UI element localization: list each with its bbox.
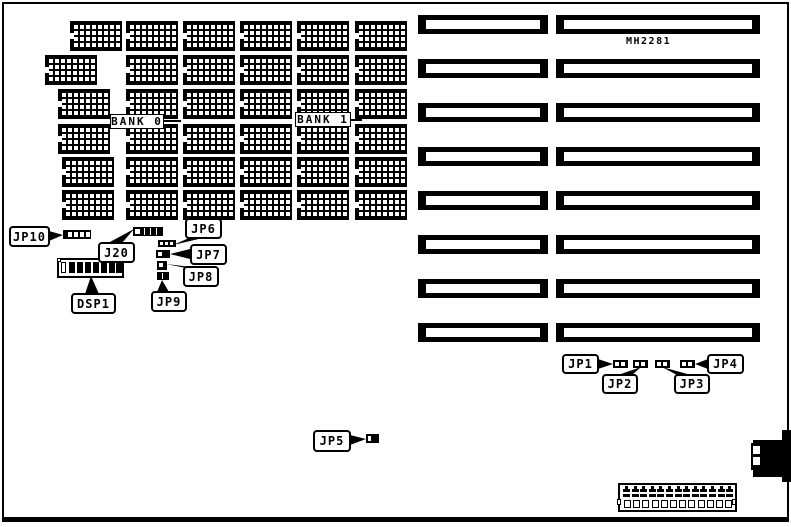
dsp1-open-cell (61, 262, 66, 273)
chip-notch (297, 101, 301, 107)
pin-pad (709, 494, 716, 497)
header-notch (617, 499, 621, 505)
jumper-pin (368, 436, 371, 441)
chip-notch (62, 169, 66, 175)
slot-opening (564, 196, 752, 205)
chip-notch (126, 67, 130, 73)
jumper-pin (68, 232, 72, 237)
dsp1-cell (101, 262, 107, 273)
jumper-pin (156, 228, 157, 235)
memory-chip (126, 157, 178, 187)
chip-notch (70, 33, 74, 39)
chip-notch (355, 169, 359, 175)
edge-connector-hole (753, 446, 760, 454)
pin-header-connector (618, 483, 737, 512)
chip-notch (240, 136, 244, 142)
memory-chip (297, 157, 349, 187)
jp3-jumper (655, 360, 670, 368)
jp4-jumper (680, 360, 695, 368)
chip-notch (126, 202, 130, 208)
dsp1-cell (109, 262, 115, 273)
jumper-pin (615, 362, 619, 366)
jumper-pin (165, 242, 168, 245)
pin-pad (718, 494, 725, 497)
jumper-pin (150, 228, 151, 235)
edge-connector-hole (753, 457, 760, 465)
jumper-pin (682, 362, 686, 366)
pin-socket (652, 500, 659, 508)
jumper-pin (135, 229, 140, 234)
slot-opening (426, 108, 540, 117)
pin-pad (683, 494, 690, 497)
jp1-jumper (613, 360, 628, 368)
chip-notch (183, 101, 187, 107)
chip-notch (297, 67, 301, 73)
memory-chip (297, 124, 349, 154)
expansion-slot-left (418, 323, 548, 342)
pin-base (718, 489, 725, 492)
chip-notch (240, 67, 244, 73)
chip-notch (183, 169, 187, 175)
slot-opening (426, 328, 540, 337)
memory-chip (297, 21, 349, 51)
jumper-pin (688, 362, 692, 366)
header-notch (732, 499, 736, 505)
pin-pad (640, 494, 647, 497)
dsp1-cell (116, 262, 122, 273)
jp10-jumper (63, 230, 91, 239)
slot-opening (564, 20, 752, 29)
chip-notch (355, 33, 359, 39)
slot-opening (564, 240, 752, 249)
memory-chip (62, 190, 114, 220)
memory-chip (240, 190, 292, 220)
dsp1-cell (69, 262, 75, 273)
jumper-pin (158, 252, 162, 256)
callout-j20-text: J20 (104, 246, 129, 260)
bank1-label-text: BANK 1 (297, 113, 349, 126)
callout-jp7: JP7 (190, 244, 227, 265)
memory-chip (240, 55, 292, 85)
expansion-slot-left (418, 191, 548, 210)
callout-dsp1: DSP1 (71, 293, 116, 314)
chip-notch (240, 33, 244, 39)
jp7-jumper (156, 250, 170, 258)
bank0-label: BANK 0 (110, 114, 164, 129)
board-id-text: MH2281 (626, 36, 671, 47)
pin-base (632, 489, 639, 492)
pin-socket (698, 500, 705, 508)
memory-chip (126, 55, 178, 85)
callout-dsp1-text: DSP1 (77, 297, 110, 311)
callout-jp1: JP1 (562, 354, 599, 374)
callout-jp3-text: JP3 (680, 377, 705, 391)
pin-socket (624, 500, 631, 508)
chip-notch (297, 202, 301, 208)
memory-chip (355, 89, 407, 119)
slot-opening (564, 284, 752, 293)
pin-base (657, 489, 664, 492)
chip-notch (240, 169, 244, 175)
memory-chip (62, 157, 114, 187)
slot-opening (426, 284, 540, 293)
chip-notch (240, 101, 244, 107)
pin-base (666, 489, 673, 492)
memory-chip (355, 124, 407, 154)
memory-chip (240, 157, 292, 187)
expansion-slot-left (418, 147, 548, 166)
callout-jp3: JP3 (674, 374, 710, 394)
chip-notch (58, 136, 62, 142)
jumper-diagram: BANK 0 BANK 1 MH2281 JP10 J20 JP6 JP7 JP… (0, 0, 791, 527)
memory-chip (240, 21, 292, 51)
jumper-pin (663, 362, 667, 366)
expansion-slot-left (418, 59, 548, 78)
chip-notch (45, 67, 49, 73)
memory-chip (297, 190, 349, 220)
chip-notch (126, 169, 130, 175)
pin-base (675, 489, 682, 492)
expansion-slot-left (418, 15, 548, 34)
chip-notch (126, 101, 130, 107)
memory-chip (297, 55, 349, 85)
pin-base (649, 489, 656, 492)
expansion-slot-left (418, 279, 548, 298)
jumper-pin (144, 228, 145, 235)
slot-opening (426, 240, 540, 249)
jp8-jumper (157, 261, 167, 270)
chip-notch (240, 202, 244, 208)
memory-chip (355, 190, 407, 220)
callout-jp1-text: JP1 (568, 357, 593, 371)
jumper-pin (80, 232, 84, 237)
pin-socket (642, 500, 649, 508)
chip-notch (355, 136, 359, 142)
chip-notch (126, 136, 130, 142)
pin-socket (679, 500, 686, 508)
callout-jp7-text: JP7 (196, 248, 221, 262)
memory-chip (58, 89, 110, 119)
memory-chip (183, 21, 235, 51)
chip-notch (183, 33, 187, 39)
jumper-pin (657, 362, 661, 366)
chip-notch (62, 202, 66, 208)
pin-socket (688, 500, 695, 508)
chip-notch (183, 136, 187, 142)
bank0-label-text: BANK 0 (111, 115, 163, 128)
callout-jp4-text: JP4 (713, 357, 738, 371)
pin-base (692, 489, 699, 492)
j20-jumper (133, 227, 163, 236)
callout-jp4: JP4 (707, 354, 744, 374)
pin-socket (633, 500, 640, 508)
memory-chip (355, 21, 407, 51)
callout-jp8-text: JP8 (189, 270, 214, 284)
pin-base (683, 489, 690, 492)
chip-notch (355, 202, 359, 208)
callout-jp5: JP5 (313, 430, 351, 452)
jumper-pin (641, 362, 645, 366)
pin-socket (716, 500, 723, 508)
pin-base (640, 489, 647, 492)
expansion-slot-left (418, 235, 548, 254)
memory-chip (183, 190, 235, 220)
slot-opening (426, 64, 540, 73)
memory-chip (355, 157, 407, 187)
jumper-pin (635, 362, 639, 366)
slot-opening (564, 64, 752, 73)
memory-chip (183, 55, 235, 85)
chip-notch (355, 67, 359, 73)
callout-jp2-text: JP2 (608, 377, 633, 391)
pin-socket (707, 500, 714, 508)
slot-opening (426, 20, 540, 29)
bank1-label: BANK 1 (295, 112, 351, 127)
memory-chip (45, 55, 97, 85)
slot-opening (564, 108, 752, 117)
jumper-pin (159, 263, 163, 267)
memory-chip (240, 89, 292, 119)
jp5-jumper (366, 434, 379, 443)
callout-jp5-text: JP5 (320, 434, 345, 448)
memory-chip (355, 55, 407, 85)
memory-chip (240, 124, 292, 154)
memory-chip (126, 190, 178, 220)
callout-jp9: JP9 (151, 291, 187, 312)
jp6-jumper (158, 240, 176, 247)
jumper-pin (170, 242, 173, 245)
jumper-pin (162, 273, 163, 279)
jumper-pin (86, 232, 90, 237)
pin-base (726, 489, 733, 492)
expansion-slot-right (556, 279, 760, 298)
dsp1-cell (93, 262, 99, 273)
expansion-slot-right (556, 235, 760, 254)
pin-pad (675, 494, 682, 497)
callout-jp6: JP6 (185, 218, 222, 239)
pin-pad (632, 494, 639, 497)
jp9-jumper (157, 272, 169, 280)
callout-jp10-text: JP10 (13, 230, 46, 244)
callout-jp8: JP8 (183, 266, 219, 287)
chip-notch (297, 169, 301, 175)
pin-pad (649, 494, 656, 497)
expansion-slot-right (556, 191, 760, 210)
dsp1-cell (85, 262, 91, 273)
chip-notch (297, 136, 301, 142)
pin-pad (666, 494, 673, 497)
callout-j20: J20 (98, 242, 135, 263)
dsp1-cell (77, 262, 83, 273)
memory-chip (183, 124, 235, 154)
chip-notch (183, 67, 187, 73)
expansion-slot-right (556, 323, 760, 342)
memory-chip (70, 21, 122, 51)
pin-pad (726, 494, 733, 497)
slot-opening (564, 328, 752, 337)
jp2-jumper (633, 360, 648, 368)
pin-pad (692, 494, 699, 497)
pin-base (709, 489, 716, 492)
pin-pad (623, 494, 630, 497)
pin-socket (670, 500, 677, 508)
expansion-slot-left (418, 103, 548, 122)
expansion-slot-right (556, 59, 760, 78)
expansion-slot-right (556, 147, 760, 166)
jumper-pin (621, 362, 625, 366)
slot-opening (426, 152, 540, 161)
chip-notch (297, 33, 301, 39)
callout-jp6-text: JP6 (191, 222, 216, 236)
memory-chip (126, 21, 178, 51)
chip-notch (126, 33, 130, 39)
expansion-slot-right (556, 15, 760, 34)
pin-base (700, 489, 707, 492)
jumper-pin (74, 232, 78, 237)
pin-pad (657, 494, 664, 497)
slot-opening (426, 196, 540, 205)
expansion-slot-right (556, 103, 760, 122)
callout-jp9-text: JP9 (157, 295, 182, 309)
callout-jp2: JP2 (602, 374, 638, 394)
callout-jp10: JP10 (9, 226, 50, 247)
pin-pad (700, 494, 707, 497)
chip-notch (355, 101, 359, 107)
pin-base (623, 489, 630, 492)
chip-notch (183, 202, 187, 208)
jumper-pin (160, 242, 163, 245)
memory-chip (183, 89, 235, 119)
slot-opening (564, 152, 752, 161)
memory-chip (58, 124, 110, 154)
memory-chip (183, 157, 235, 187)
chip-notch (58, 101, 62, 107)
pin-socket (661, 500, 668, 508)
